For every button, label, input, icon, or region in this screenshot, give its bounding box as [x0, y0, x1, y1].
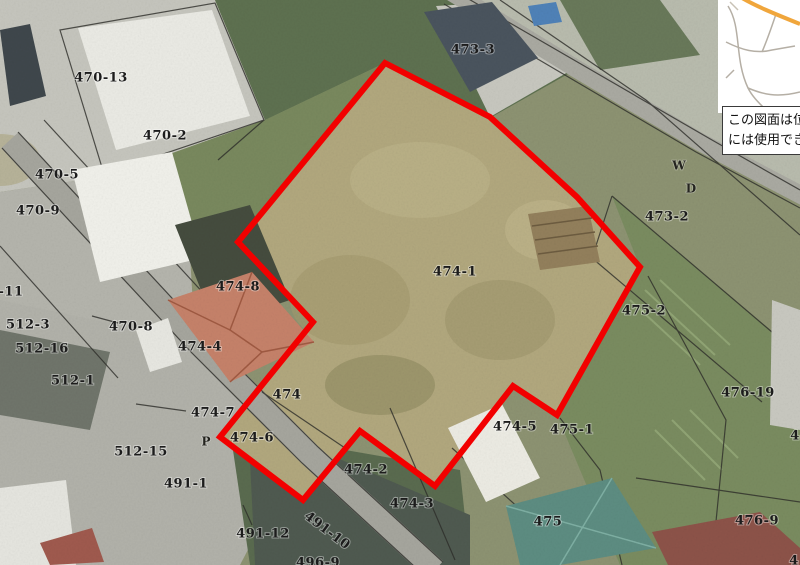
- parcel-label-475: 475: [534, 515, 563, 530]
- map-disclaimer-note: この図面は位置 には使用できま: [722, 106, 800, 155]
- road-mark-D: D: [686, 182, 696, 196]
- parcel-label-512-16: 512-16: [15, 342, 69, 357]
- map-canvas[interactable]: 470-13470-2470-5470-9-11512-3512-16470-8…: [0, 0, 800, 565]
- parcel-label-476-9: 476-9: [735, 514, 779, 529]
- parcel-label-474-8: 474-8: [216, 280, 260, 295]
- parcel-label-474-1: 474-1: [433, 265, 477, 280]
- parcel-label-474-7: 474-7: [191, 406, 235, 421]
- parcel-label-470-13: 470-13: [74, 71, 128, 86]
- aerial-map-svg: 470-13470-2470-5470-9-11512-3512-16470-8…: [0, 0, 800, 565]
- road-mark-W: W: [671, 159, 686, 173]
- road-mark-P: P: [201, 435, 210, 449]
- parcel-label-474-6: 474-6: [230, 431, 274, 446]
- parcel-label-512-3: 512-3: [6, 318, 50, 333]
- parcel-label-470-5: 470-5: [35, 168, 79, 183]
- disclaimer-line-2: には使用できま: [728, 130, 800, 150]
- parcel-label-475-1: 475-1: [550, 423, 594, 438]
- parcel-label-496-9: 496-9: [296, 556, 340, 565]
- parcel-label-473-2: 473-2: [645, 210, 689, 225]
- parcel-label-474-3: 474-3: [390, 497, 434, 512]
- parcel-label-476-19: 476-19: [721, 386, 775, 401]
- parcel-label-470-9: 470-9: [16, 204, 60, 219]
- parcel-label-470-2: 470-2: [143, 129, 187, 144]
- parcel-label-4: 4: [790, 429, 800, 444]
- parcel-label-470-8: 470-8: [109, 320, 153, 335]
- overview-inset-map: [718, 0, 800, 113]
- parcel-label-474-2: 474-2: [344, 463, 388, 478]
- parcel-label-475-2: 475-2: [622, 304, 666, 319]
- parcel-label-512-15: 512-15: [114, 445, 168, 460]
- parcel-label-491-1: 491-1: [164, 477, 208, 492]
- parcel-label--11: -11: [0, 285, 24, 300]
- parcel-label-473-3: 473-3: [451, 43, 495, 58]
- parcel-label-474-5: 474-5: [493, 420, 537, 435]
- parcel-label-512-1: 512-1: [51, 374, 95, 389]
- parcel-label-491-12: 491-12: [236, 527, 290, 542]
- disclaimer-line-1: この図面は位置: [728, 110, 800, 130]
- parcel-label-474-4: 474-4: [178, 340, 222, 355]
- parcel-label-474: 474: [273, 388, 302, 403]
- parcel-label-4: 4: [789, 554, 799, 565]
